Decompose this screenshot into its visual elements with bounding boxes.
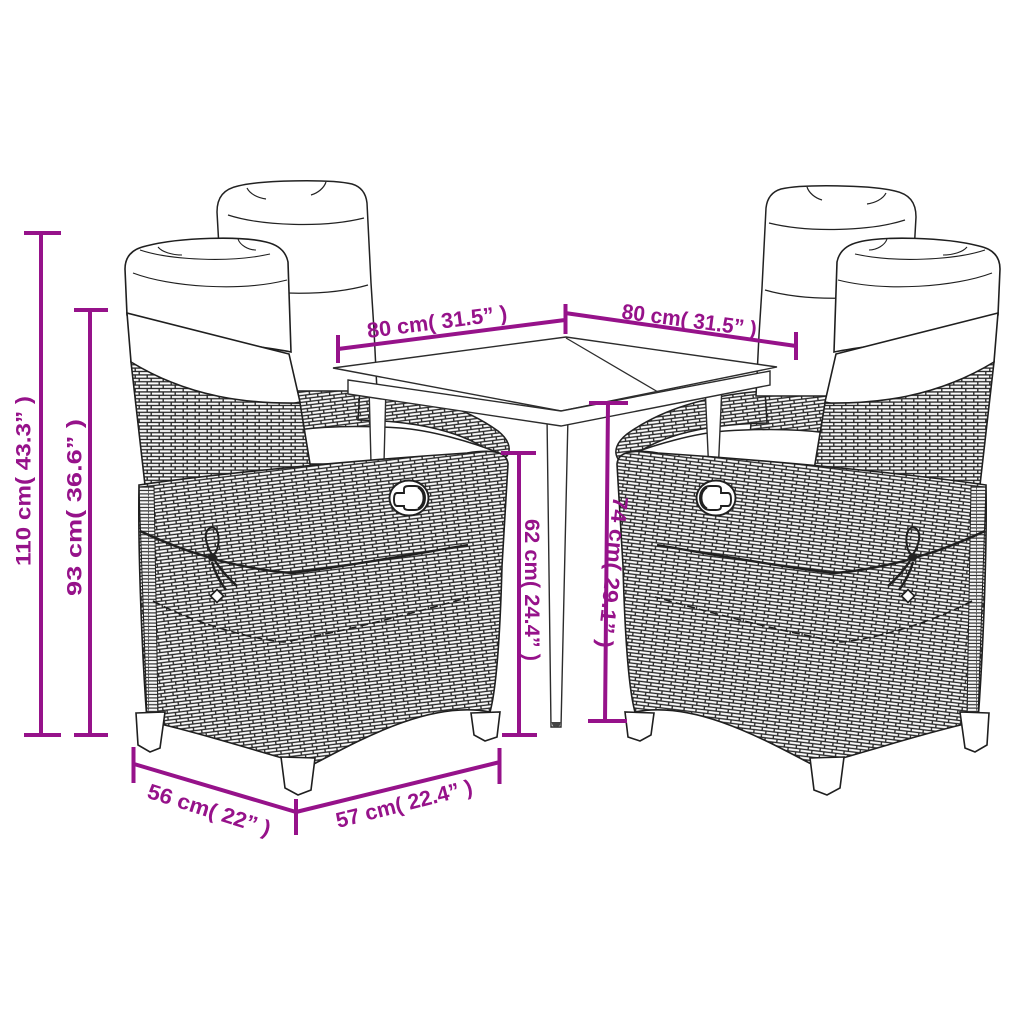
svg-text:62 cm( 24.4” ): 62 cm( 24.4” )	[520, 519, 544, 661]
svg-text:93 cm( 36.6” ): 93 cm( 36.6” )	[63, 419, 87, 596]
svg-text:80 cm( 31.5” ): 80 cm( 31.5” )	[620, 300, 758, 342]
svg-text:56 cm( 22” ): 56 cm( 22” )	[144, 779, 273, 840]
svg-text:110 cm( 43.3” ): 110 cm( 43.3” )	[12, 396, 36, 566]
